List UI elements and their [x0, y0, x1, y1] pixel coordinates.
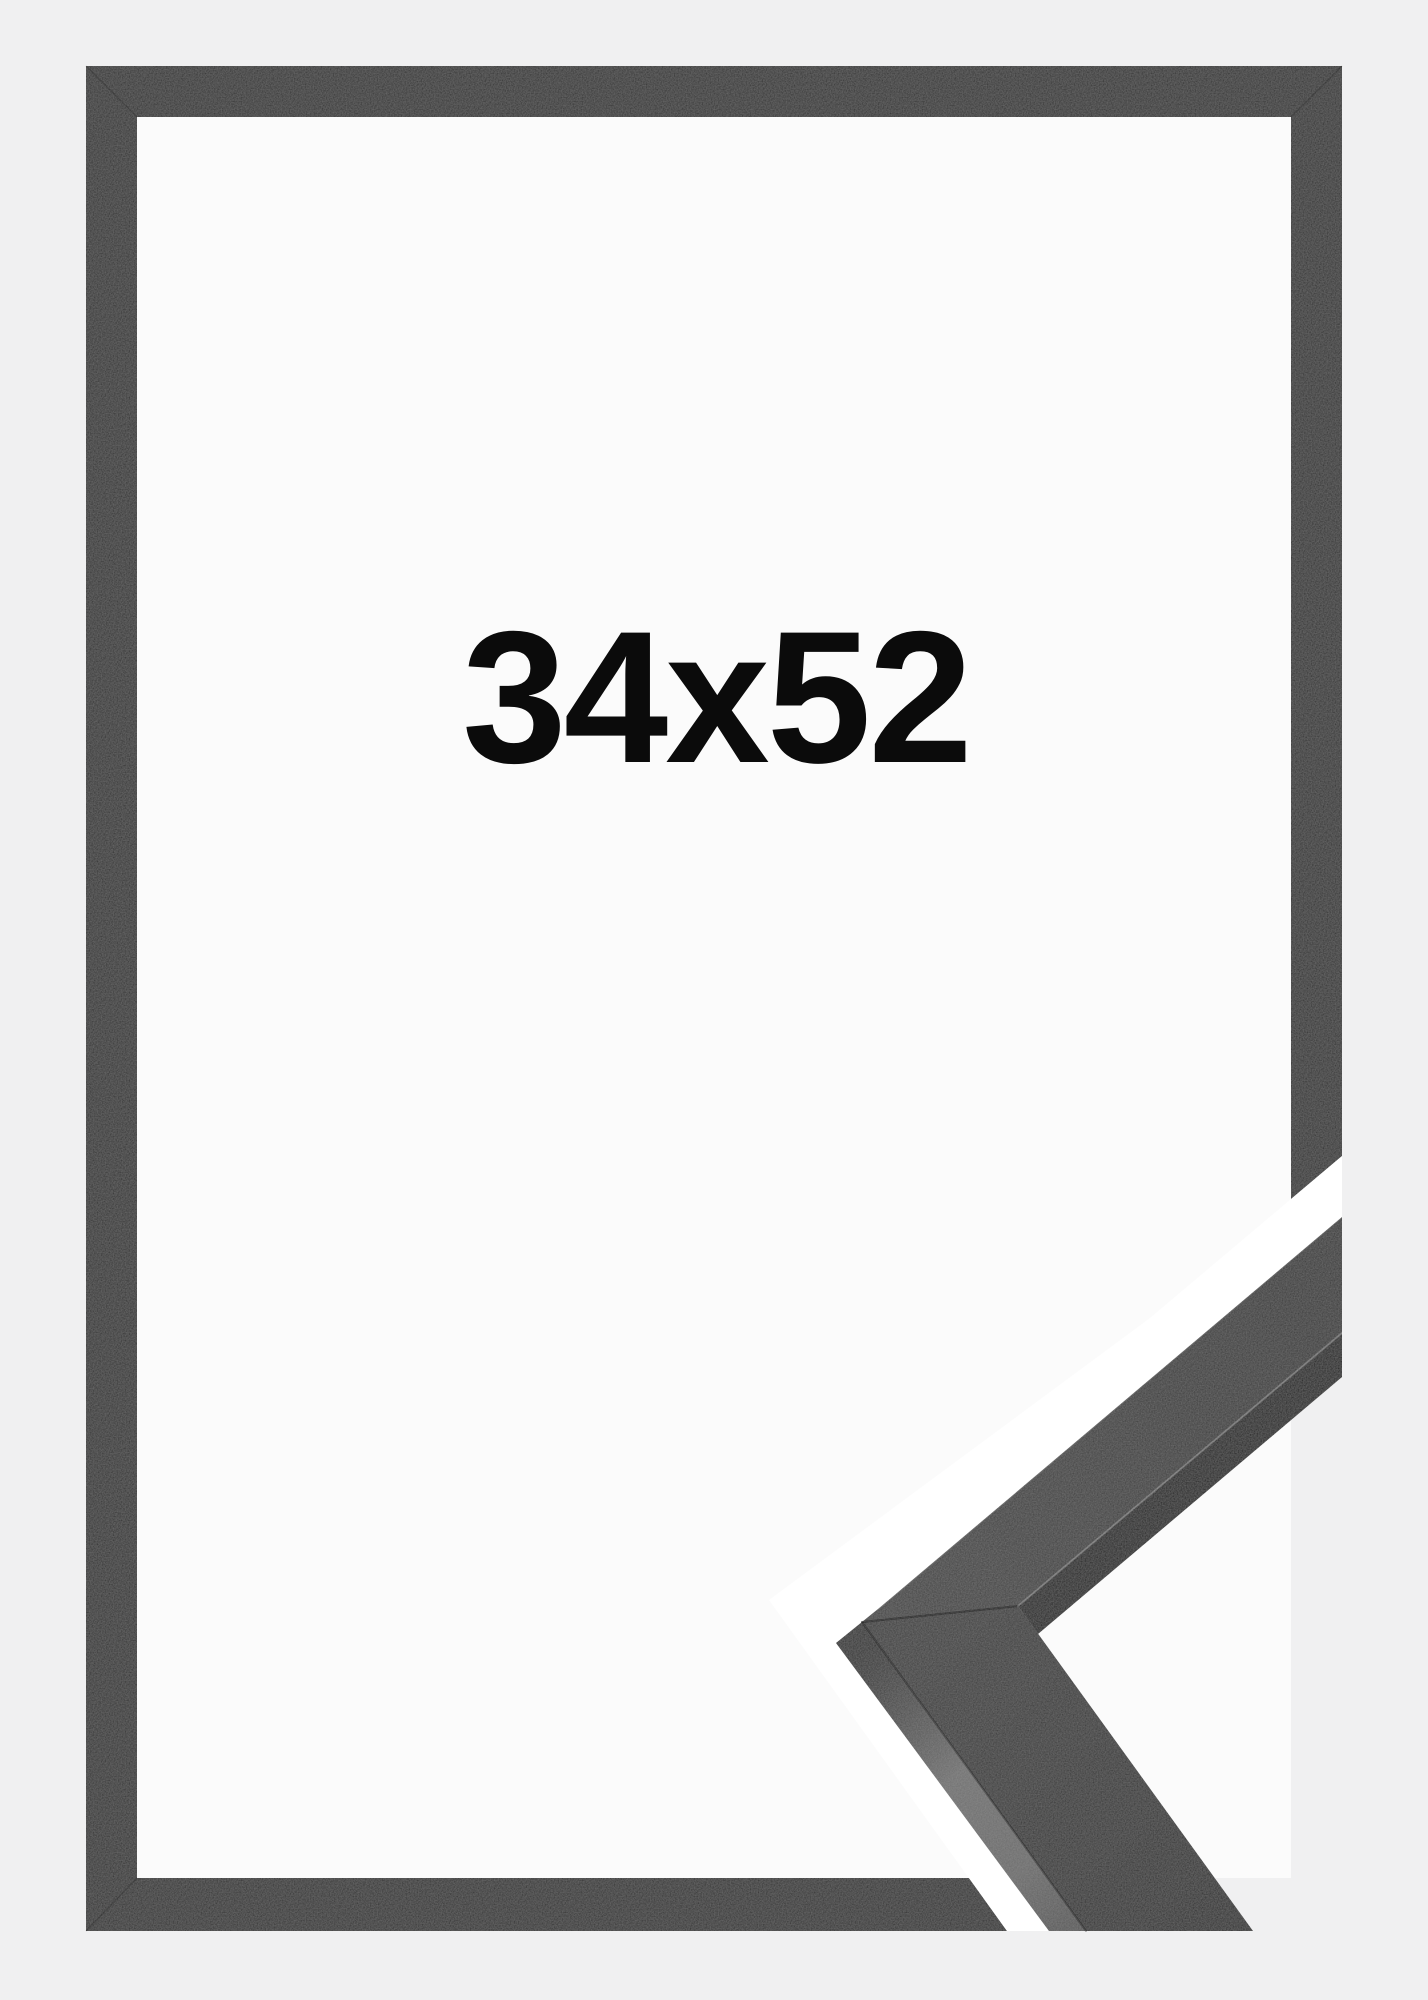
- frame-product-photo: 34x52: [0, 0, 1428, 2000]
- frame-photo-canvas: 34x52: [0, 0, 1428, 2000]
- frame-paper-insert: [137, 117, 1291, 1878]
- size-label: 34x52: [462, 592, 970, 802]
